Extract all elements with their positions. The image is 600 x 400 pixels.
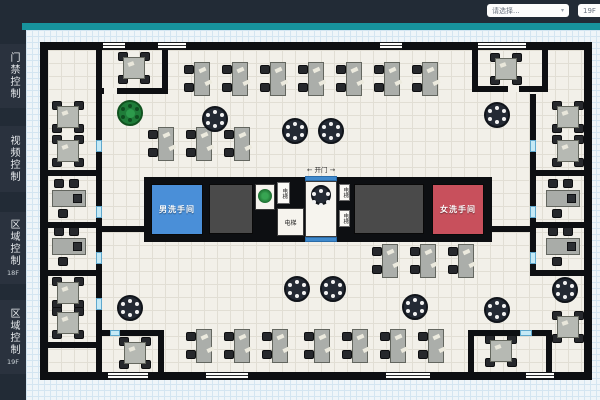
desk xyxy=(418,329,444,363)
window xyxy=(108,372,148,380)
workstation xyxy=(544,226,584,266)
sidebar-item-label: 区域控制 xyxy=(8,219,18,267)
door-gap[interactable] xyxy=(96,252,102,264)
core-stub-wall xyxy=(102,226,144,232)
desk xyxy=(448,244,474,278)
door-marker-bottom[interactable] xyxy=(305,237,337,242)
round-table xyxy=(320,276,346,302)
door-gap[interactable] xyxy=(508,86,519,92)
women-restroom-label: 女洗手间 xyxy=(440,204,476,215)
desk xyxy=(410,244,436,278)
workstation xyxy=(50,178,90,218)
sidebar-item-area-control-18f[interactable]: 区域控制 18F xyxy=(0,212,26,284)
elevator-tag-label: 电梯 xyxy=(342,187,348,198)
workstation xyxy=(544,178,584,218)
door-gap[interactable] xyxy=(96,206,102,218)
right-corridor-wall xyxy=(530,94,536,276)
elevator-tag[interactable]: 电梯 xyxy=(339,184,350,201)
door-gap[interactable] xyxy=(530,140,536,152)
topbar: 请选择... ▾ 19F xyxy=(0,0,600,23)
meeting-table xyxy=(117,51,151,85)
men-restroom-label: 男洗手间 xyxy=(159,204,195,215)
sidebar-item-label: 视频控制 xyxy=(8,135,18,183)
elevator-tag-label: 电梯 xyxy=(342,213,348,224)
meeting-table xyxy=(489,52,523,86)
stairs-block-a xyxy=(209,184,253,234)
door-label-label: ← 开门 → xyxy=(307,164,335,174)
meeting-table xyxy=(484,334,518,368)
door-gap[interactable] xyxy=(96,298,102,310)
desk xyxy=(374,62,400,96)
elevator-cell[interactable]: 电梯 xyxy=(277,208,304,236)
women-restroom[interactable]: 女洗手间 xyxy=(432,184,484,235)
building-select-value: 请选择... xyxy=(492,6,520,16)
desk xyxy=(224,329,250,363)
elevator-cell-label: 电梯 xyxy=(284,218,296,227)
door-marker-top[interactable] xyxy=(305,176,337,181)
stairs-block-b xyxy=(354,184,424,234)
sidebar-item-floor: 18F xyxy=(7,269,19,277)
core-stub-wall xyxy=(492,226,530,232)
floor-select[interactable]: 19F xyxy=(578,4,600,17)
desk xyxy=(372,244,398,278)
desk xyxy=(412,62,438,96)
window xyxy=(380,42,402,50)
round-table xyxy=(282,118,308,144)
meeting-table xyxy=(51,306,85,340)
sidebar-item-floor: 19F xyxy=(7,358,19,366)
desk xyxy=(298,62,324,96)
desk xyxy=(304,329,330,363)
room-divider xyxy=(536,170,584,176)
door-gap[interactable] xyxy=(104,88,117,94)
desk xyxy=(186,329,212,363)
room-divider xyxy=(48,342,98,348)
sidebar-item-area-control-19f[interactable]: 区域控制 19F xyxy=(0,300,26,374)
desk xyxy=(224,127,250,161)
men-restroom[interactable]: 男洗手间 xyxy=(151,184,203,235)
desk xyxy=(262,329,288,363)
sidebar-item-label: 区域控制 xyxy=(8,308,18,356)
room-divider xyxy=(48,170,98,176)
elevator-tag[interactable]: 电梯 xyxy=(339,210,350,227)
round-table xyxy=(484,102,510,128)
desk xyxy=(148,127,174,161)
window xyxy=(386,372,430,380)
desk xyxy=(342,329,368,363)
meeting-table xyxy=(551,100,585,134)
sidebar: 门禁控制 视频控制 区域控制 18F 区域控制 19F xyxy=(0,0,26,400)
door-gap[interactable] xyxy=(530,252,536,264)
meeting-room-wall xyxy=(96,50,102,88)
elevator-tag-label: 电梯 xyxy=(281,188,287,199)
plant-icon xyxy=(258,189,272,203)
bottom-room-wall xyxy=(468,330,474,372)
round-table xyxy=(484,297,510,323)
desk xyxy=(222,62,248,96)
outer-wall-right xyxy=(584,42,592,380)
meeting-room-wall xyxy=(162,50,168,94)
desk xyxy=(336,62,362,96)
floor-plan[interactable]: 男洗手间电梯电梯电梯电梯女洗手间← 开门 → xyxy=(0,0,600,400)
app-window: 请选择... ▾ 19F 门禁控制 视频控制 区域控制 18F 区域控制 19F… xyxy=(0,0,600,400)
meeting-table xyxy=(51,100,85,134)
desk xyxy=(186,127,212,161)
door-gap[interactable] xyxy=(520,330,532,336)
window xyxy=(478,42,526,50)
door-gap[interactable] xyxy=(96,140,102,152)
meeting-table xyxy=(551,134,585,168)
lobby-round-table xyxy=(311,185,331,205)
round-table xyxy=(202,106,228,132)
elevator-tag[interactable]: 电梯 xyxy=(277,182,290,204)
door-label: ← 开门 → xyxy=(294,164,348,174)
sidebar-item-access-control[interactable]: 门禁控制 xyxy=(0,44,26,108)
desk xyxy=(380,329,406,363)
meeting-table xyxy=(51,134,85,168)
meeting-room-wall xyxy=(542,50,548,86)
chevron-down-icon: ▾ xyxy=(561,7,564,14)
round-table xyxy=(402,294,428,320)
bottom-room-wall xyxy=(158,330,164,372)
meeting-table xyxy=(51,276,85,310)
sidebar-item-video-control[interactable]: 视频控制 xyxy=(0,126,26,192)
desk xyxy=(184,62,210,96)
window xyxy=(158,42,186,50)
accent-bar xyxy=(22,23,600,30)
room-divider xyxy=(530,270,592,276)
window xyxy=(103,42,125,50)
desk xyxy=(260,62,286,96)
workstation xyxy=(50,226,90,266)
meeting-table xyxy=(118,336,152,370)
floor-select-value: 19F xyxy=(583,7,596,15)
building-select[interactable]: 请选择... ▾ xyxy=(487,4,569,17)
round-table xyxy=(318,118,344,144)
window xyxy=(526,372,554,380)
meeting-table xyxy=(551,310,585,344)
window xyxy=(206,372,248,380)
door-gap[interactable] xyxy=(530,206,536,218)
round-table xyxy=(284,276,310,302)
outer-wall-left xyxy=(40,42,48,380)
sidebar-item-label: 门禁控制 xyxy=(8,52,18,100)
green-round-table xyxy=(117,100,143,126)
round-table xyxy=(552,277,578,303)
round-table xyxy=(117,295,143,321)
